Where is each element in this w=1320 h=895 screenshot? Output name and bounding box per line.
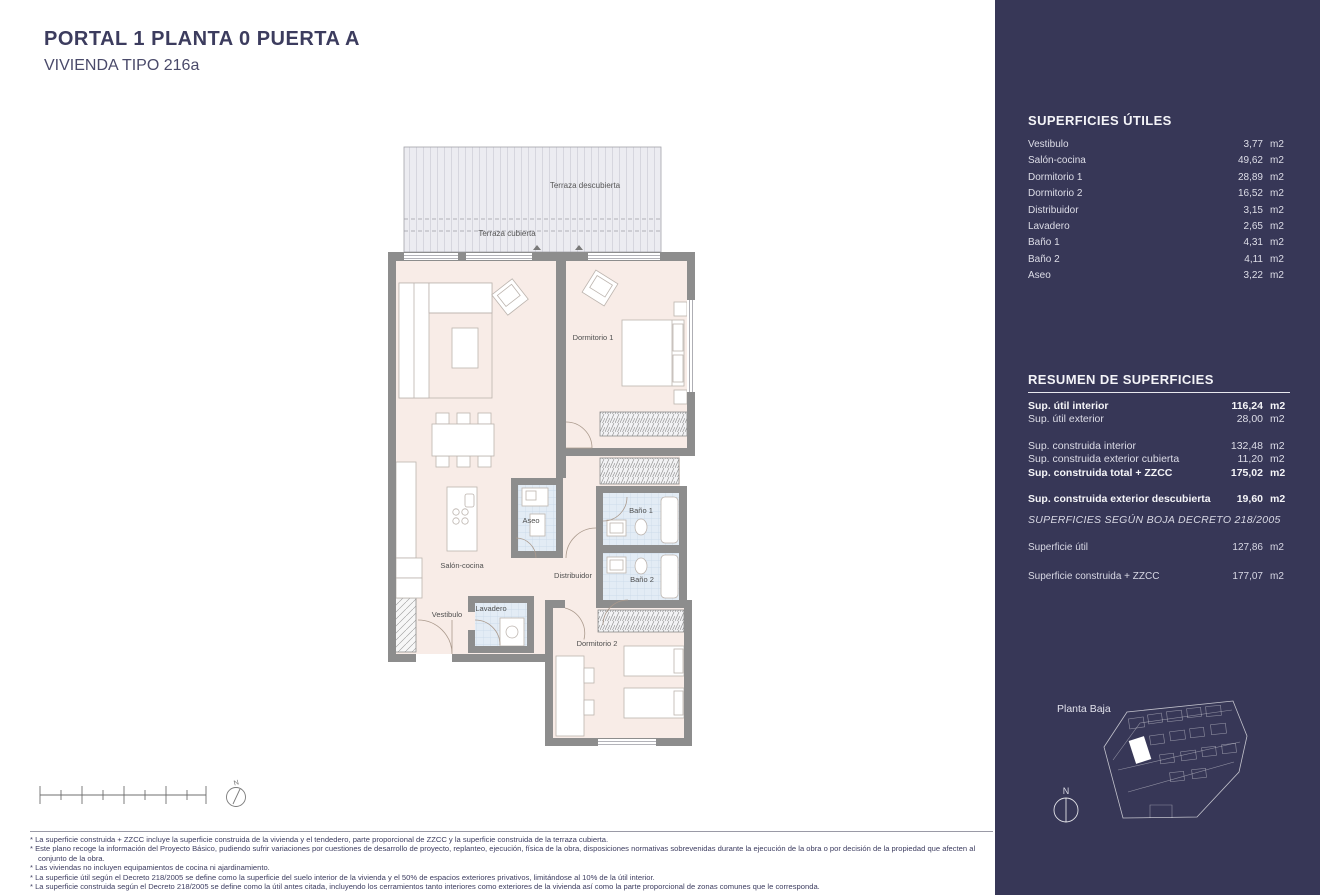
table-row: Sup. útil interior116,24m2	[1028, 400, 1290, 413]
table-row: Dormitorio 128,89m2	[1028, 170, 1290, 186]
footnote: * La superficie construida + ZZCC incluy…	[30, 835, 993, 844]
terrace: Terraza descubierta Terraza cubierta	[404, 147, 661, 252]
footnote: * La superficie construida según el Decr…	[30, 882, 993, 891]
table-row: Dormitorio 216,52m2	[1028, 186, 1290, 202]
table-row: Distribuidor3,15m2	[1028, 203, 1290, 219]
superficies-utiles-title: SUPERFICIES ÚTILES	[1028, 113, 1290, 128]
resumen-section: RESUMEN DE SUPERFICIES Sup. útil interio…	[1028, 372, 1290, 506]
floorplan-drawing: Terraza descubierta Terraza cubierta	[20, 140, 720, 830]
floorplan-sheet: PORTAL 1 PLANTA 0 PUERTA A VIVIENDA TIPO…	[0, 0, 1320, 895]
sheet-header: PORTAL 1 PLANTA 0 PUERTA A VIVIENDA TIPO…	[44, 28, 360, 75]
minimap-buildings	[1113, 705, 1240, 818]
table-row: Sup. construida interior132,48m2	[1028, 440, 1290, 453]
bano2-label: Baño 2	[630, 575, 654, 584]
table-row: Superficie construida + ZZCC177,07m2	[1028, 571, 1290, 582]
salon-label: Salón-cocina	[440, 561, 484, 570]
table-row: Sup. construida total + ZZCC175,02m2	[1028, 467, 1290, 480]
footnote: * Este plano recoge la información del P…	[30, 844, 993, 863]
summary-sidebar: SUPERFICIES ÚTILES Vestibulo3,77m2 Salón…	[995, 0, 1320, 895]
vestibulo-label: Vestibulo	[432, 610, 462, 619]
table-row: Vestibulo3,77m2	[1028, 137, 1290, 153]
divider	[1028, 392, 1290, 393]
table-row: Salón-cocina49,62m2	[1028, 153, 1290, 169]
minimap-unit-highlight	[1129, 736, 1152, 764]
boja-section: SUPERFICIES SEGÚN BOJA DECRETO 218/2005 …	[1028, 514, 1290, 582]
terrace-covered-label: Terraza cubierta	[478, 229, 536, 238]
footnote: * Las viviendas no incluyen equipamiento…	[30, 863, 993, 872]
lavadero-label: Lavadero	[475, 604, 506, 613]
site-minimap: N	[995, 690, 1320, 895]
dorm2-label: Dormitorio 2	[577, 639, 618, 648]
table-row: Lavadero2,65m2	[1028, 219, 1290, 235]
terrace-open-label: Terraza descubierta	[550, 181, 621, 190]
table-row: Baño 24,11m2	[1028, 252, 1290, 268]
boja-title: SUPERFICIES SEGÚN BOJA DECRETO 218/2005	[1028, 514, 1290, 526]
page-subtitle: VIVIENDA TIPO 216a	[44, 57, 360, 75]
footnote: * La superficie útil según el Decreto 21…	[30, 873, 993, 882]
compass-icon: N	[227, 779, 246, 806]
superficies-utiles-section: SUPERFICIES ÚTILES Vestibulo3,77m2 Salón…	[1028, 113, 1290, 285]
table-row: Superficie útil127,86m2	[1028, 542, 1290, 553]
compass-n-label: N	[233, 779, 240, 787]
bano1-label: Baño 1	[629, 506, 653, 515]
resumen-title: RESUMEN DE SUPERFICIES	[1028, 372, 1290, 387]
minimap-compass-n-label: N	[1063, 786, 1070, 796]
minimap-compass-icon: N	[1054, 786, 1078, 822]
table-row: Sup. útil exterior28,00m2	[1028, 413, 1290, 426]
scale-bar	[40, 786, 206, 804]
table-row: Aseo3,22m2	[1028, 268, 1290, 284]
table-row: Sup. construida exterior cubierta11,20m2	[1028, 453, 1290, 466]
page-title: PORTAL 1 PLANTA 0 PUERTA A	[44, 28, 360, 51]
table-row: Baño 14,31m2	[1028, 235, 1290, 251]
dorm1-label: Dormitorio 1	[573, 333, 614, 342]
table-row: Sup. construida exterior descubierta19,6…	[1028, 493, 1290, 506]
distribuidor-label: Distribuidor	[554, 571, 592, 580]
aseo-label: Aseo	[522, 516, 539, 525]
footnotes: * La superficie construida + ZZCC incluy…	[30, 831, 993, 891]
